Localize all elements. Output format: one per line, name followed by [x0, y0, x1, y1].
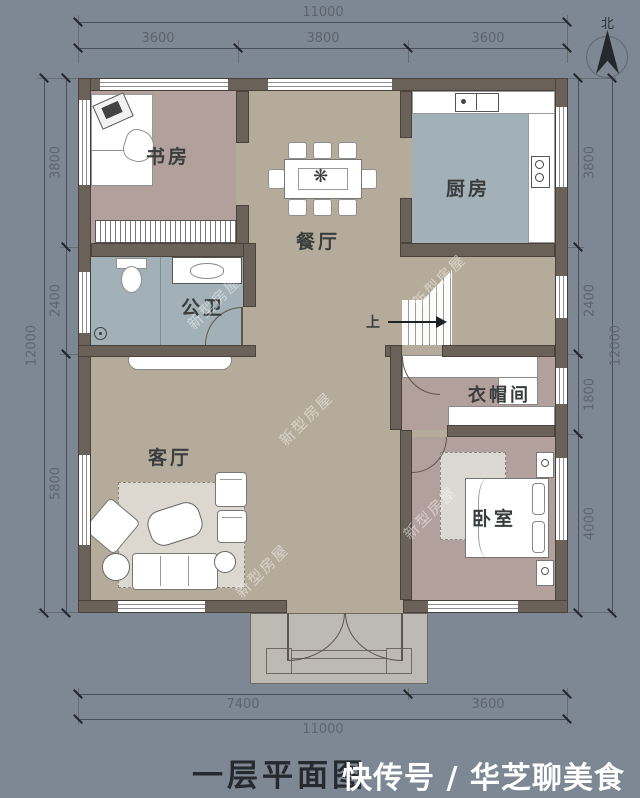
window-living-bottom: [118, 600, 205, 613]
stairs-up-label: 上: [366, 312, 380, 332]
nightstand-lamp: [541, 459, 549, 467]
wall-study-bottom: [91, 243, 253, 257]
dining-chair: [338, 142, 357, 159]
kitchen-sink-divider: [476, 94, 477, 110]
dim-line-top-total: [78, 22, 568, 23]
dim-line-bottom-total: [78, 719, 568, 720]
brand-watermark: 快传号 / 华芝聊美食: [342, 753, 625, 797]
dining-chair: [360, 169, 377, 189]
entry-door-leaf: [401, 613, 403, 661]
label-living: 客厅: [148, 443, 192, 470]
entry-door-leaf: [287, 613, 289, 661]
dim-line-top-segments: [78, 48, 568, 49]
wall-bathroom-right: [243, 243, 256, 307]
dim-right-seg-2: 2400: [583, 271, 598, 331]
wall-bedroom-top: [447, 425, 555, 437]
window-living-left: [78, 455, 91, 545]
dim-right-seg-1: 3800: [583, 133, 598, 193]
shower-partition: [160, 257, 161, 345]
extension-line: [568, 78, 616, 79]
pillow: [532, 521, 545, 553]
pillow: [532, 483, 545, 515]
north-label: 北: [601, 13, 614, 32]
label-bedroom: 卧室: [472, 504, 516, 531]
window-study-left: [78, 100, 91, 185]
window-cloakroom-right: [555, 368, 568, 404]
dim-bottom-seg-2: 3600: [458, 697, 518, 712]
wall-kitchen-left-top: [400, 91, 412, 138]
extension-line: [238, 40, 239, 63]
dim-right-total: 12000: [609, 314, 624, 378]
window-bathroom-left: [78, 272, 91, 333]
dining-chair: [288, 199, 307, 216]
wall-bathroom-bottom: [78, 345, 256, 357]
side-table-round: [214, 551, 236, 573]
side-table-round: [102, 553, 130, 581]
stove-burner: [535, 173, 544, 182]
nightstand-lamp: [541, 567, 549, 575]
dining-chair: [268, 169, 285, 189]
kitchen-faucet: [461, 99, 466, 104]
dim-bottom-seg-1: 7400: [213, 697, 273, 712]
dining-chair: [313, 199, 332, 216]
bathroom-door-leaf: [241, 307, 243, 345]
vanity-basin: [190, 263, 224, 279]
floor-plan-canvas: ❋ 上: [0, 0, 640, 798]
sofa-cushion-line: [160, 556, 161, 586]
window-kitchen-right: [555, 107, 568, 187]
dim-top-seg-1: 3600: [128, 31, 188, 46]
wall-living-bedroom: [400, 430, 412, 600]
shower-head-dot: [99, 332, 102, 335]
dim-left-total: 12000: [25, 314, 40, 378]
extension-line: [408, 40, 409, 63]
dim-line-left-segments: [66, 78, 67, 613]
dining-chair: [288, 142, 307, 159]
wall-kitchen-bottom: [400, 243, 555, 257]
wall-kitchen-left-bottom: [400, 198, 412, 243]
dim-top-seg-2: 3800: [293, 31, 353, 46]
entry-threshold: [287, 600, 403, 613]
armchair: [215, 472, 247, 507]
dim-bottom-total: 11000: [293, 722, 353, 737]
label-cloakroom: 衣帽间: [468, 381, 531, 407]
dining-chair: [338, 199, 357, 216]
dim-right-seg-3: 1800: [583, 365, 598, 425]
plan-title: 一层平面图: [192, 750, 367, 798]
wall-cloakroom-left: [390, 345, 402, 430]
study-bookshelf: [95, 220, 245, 243]
dim-left-seg-3: 5800: [49, 454, 64, 514]
dim-line-right-segments: [578, 78, 579, 613]
label-study: 书房: [146, 142, 190, 169]
sofa-cushion-line: [188, 556, 189, 586]
window-hall-right: [555, 276, 568, 318]
armchair: [217, 510, 247, 543]
dim-top-total: 11000: [293, 5, 353, 20]
armchair-line: [220, 479, 242, 480]
window-dining-top: [268, 78, 392, 91]
wall-hall-bottom-right: [442, 345, 555, 357]
dim-top-seg-3: 3600: [458, 31, 518, 46]
dining-centerpiece: ❋: [313, 166, 333, 190]
label-dining: 餐厅: [296, 227, 340, 254]
dim-line-bottom-segments: [78, 694, 568, 695]
armchair-line: [222, 517, 242, 518]
sofa-three-seat: [132, 553, 218, 590]
dining-chair: [313, 142, 332, 159]
dim-right-seg-4: 4000: [583, 494, 598, 554]
window-study-top: [100, 78, 228, 91]
wall-study-dining-top: [236, 91, 249, 143]
label-kitchen: 厨房: [446, 174, 490, 201]
toilet-bowl: [121, 266, 142, 293]
stairs-arrow-head: [436, 316, 447, 328]
window-bedroom-right: [555, 458, 568, 540]
stove-burner: [535, 160, 544, 169]
dim-left-seg-1: 3800: [49, 133, 64, 193]
stairs-arrow-line: [388, 321, 436, 323]
window-bedroom-bottom: [428, 600, 518, 613]
dim-line-left-total: [44, 78, 45, 613]
dim-left-seg-2: 2400: [49, 271, 64, 331]
